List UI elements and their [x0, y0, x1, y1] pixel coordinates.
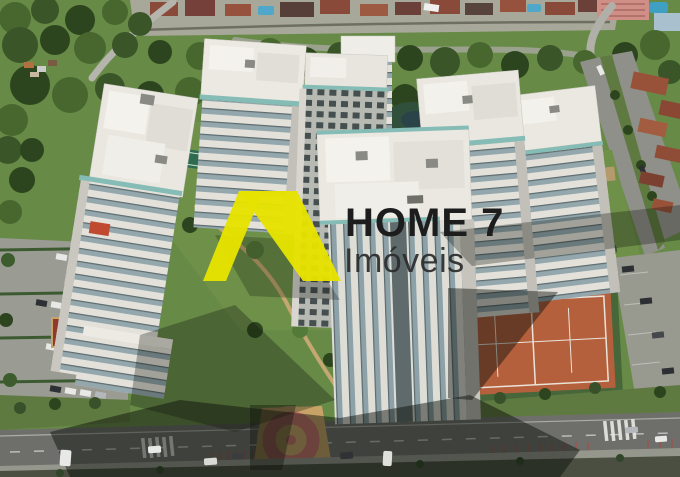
- mansion-pool: [258, 6, 274, 15]
- car: [640, 297, 653, 304]
- rooftop-pool: [649, 2, 668, 13]
- mansion-pool: [527, 4, 541, 12]
- car: [652, 331, 665, 338]
- glass-tower-edge: [654, 13, 680, 31]
- mansion-row: [130, 0, 620, 36]
- car: [622, 265, 635, 272]
- aerial-photo: HOME 7 Imóveis: [0, 0, 680, 477]
- watermark-brand-text: HOME 7: [345, 201, 504, 245]
- watermark-subtitle-text: Imóveis: [344, 242, 465, 280]
- car: [662, 367, 675, 374]
